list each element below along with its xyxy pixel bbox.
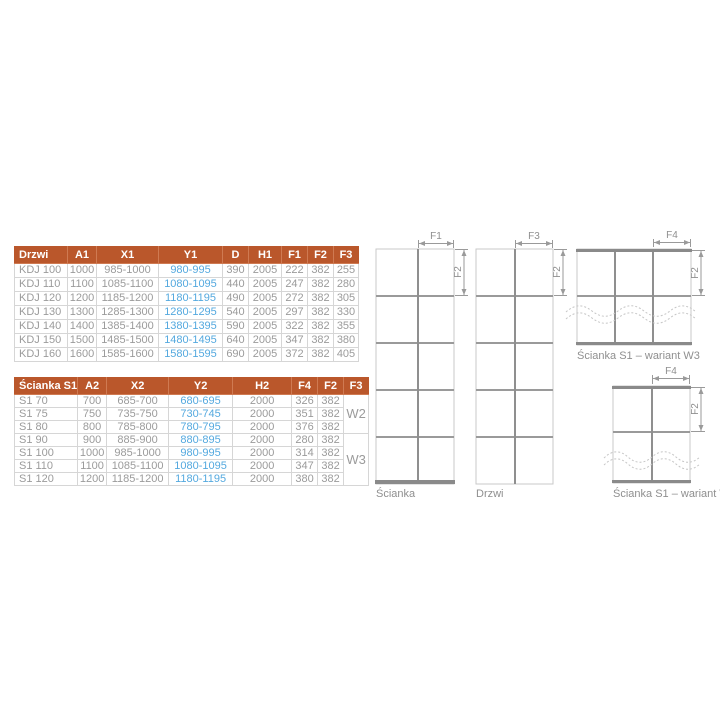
wall-profile-bar bbox=[612, 480, 691, 483]
dim-label-f3: F3 bbox=[528, 231, 540, 242]
dim-label-f2-w2: F2 bbox=[690, 403, 701, 415]
wariant-w2-diagram: F4 F2 Ścianka S1 – wariant W2 bbox=[604, 366, 720, 500]
wariant-w2-label: Ścianka S1 – wariant W2 bbox=[613, 487, 720, 500]
technical-diagrams: F1 F2 Ścianka F3 bbox=[0, 0, 720, 720]
wall-profile-bar bbox=[576, 249, 692, 252]
wall-profile-bar bbox=[576, 342, 692, 345]
scianka-diagram: F1 F2 Ścianka bbox=[375, 231, 468, 500]
dim-label-f4-w3: F4 bbox=[666, 230, 678, 241]
dim-label-f4-w2: F4 bbox=[665, 366, 677, 377]
spec-sheet-page: DrzwiA1X1Y1DH1F1F2F3 KDJ 1001000985-1000… bbox=[0, 0, 720, 720]
dim-label-f2-scianka: F2 bbox=[453, 266, 464, 278]
break-line bbox=[566, 306, 696, 317]
dim-label-f2-w3: F2 bbox=[690, 267, 701, 279]
dim-label-f1: F1 bbox=[430, 231, 442, 242]
drzwi-diagram-label: Drzwi bbox=[476, 488, 504, 500]
wariant-w3-diagram: F4 F2 Ścianka S1 – wariant W3 bbox=[566, 230, 705, 362]
wall-profile-bar bbox=[375, 480, 455, 484]
wariant-w3-label: Ścianka S1 – wariant W3 bbox=[577, 349, 700, 362]
wall-profile-bar bbox=[612, 386, 691, 389]
scianka-diagram-label: Ścianka bbox=[376, 487, 416, 500]
dim-label-f2-drzwi: F2 bbox=[552, 266, 563, 278]
drzwi-diagram: F3 F2 Drzwi bbox=[476, 231, 567, 500]
break-line bbox=[566, 313, 696, 324]
